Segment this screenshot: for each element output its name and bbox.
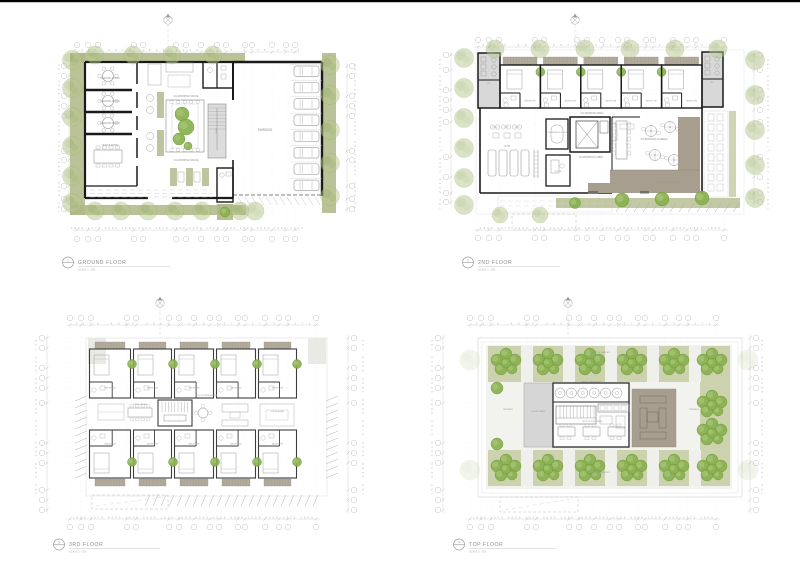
dim-string-right: 750 2300 1400 1700 4650 1400 2300 750 bbox=[353, 64, 357, 212]
room-label-bedroom: BEDROOM bbox=[525, 101, 536, 103]
plan-scale: SCALE 1 : 100 bbox=[469, 549, 487, 553]
plan-title: 2ND FLOOR bbox=[478, 260, 512, 266]
room-label-meeting-1: MEETING ROOM bbox=[101, 77, 120, 80]
room-label-coworking-top: CO-WORKING SPACE bbox=[174, 95, 199, 98]
plan-scale: SCALE 1 : 100 bbox=[478, 267, 496, 271]
room-label-bedroom: BEDROOM bbox=[231, 388, 242, 390]
title-block-top-floor: 4 TOP FLOOR SCALE 1 : 100 bbox=[454, 539, 557, 553]
plan-3rd-floor-drawing bbox=[39, 297, 357, 530]
title-block-3rd-floor: 3 3RD FLOOR SCALE 1 : 100 bbox=[54, 539, 161, 553]
room-label-coworking: CO-WORKING AREA bbox=[197, 394, 218, 397]
room-label-meeting-2: MEETING ROOM bbox=[101, 100, 120, 103]
plan-scale: SCALE 1 : 100 bbox=[69, 549, 87, 553]
room-label-bedroom: BEDROOM bbox=[147, 444, 158, 446]
room-label-bedroom: BEDROOM bbox=[272, 388, 283, 390]
dim-string-right: 750 2300 1400 1700 4650 1400 2300 750 bbox=[760, 339, 764, 494]
plan-scale: SCALE 1 : 100 bbox=[78, 267, 96, 271]
room-label-outdoor: CO-WORKING OUTDOOR bbox=[655, 182, 681, 184]
dim-string-right: 750 2300 1400 1700 4650 1400 2300 750 bbox=[766, 59, 770, 209]
plan-title: 3RD FLOOR bbox=[69, 542, 103, 548]
plan-top-floor-drawing bbox=[435, 297, 759, 530]
room-label-bedroom: BEDROOM bbox=[189, 444, 200, 446]
room-label-bedroom: BEDROOM bbox=[231, 444, 242, 446]
room-label-conference: CONFERENCE ROOM bbox=[546, 132, 568, 134]
room-label-parking: PARKING bbox=[258, 128, 273, 132]
room-label-rooftop-bottom: ROOFTOP GARDEN bbox=[590, 471, 610, 474]
room-label-gym: GYM bbox=[504, 145, 509, 148]
room-label-wc-right: WC bbox=[710, 82, 714, 84]
room-label-office: OFFICE bbox=[554, 171, 562, 173]
room-label-bedroom: BEDROOM bbox=[605, 101, 616, 103]
title-marker-number: 2 bbox=[467, 258, 469, 262]
plan-title: GROUND FLOOR bbox=[78, 260, 126, 266]
room-label-rooftop-top: ROOFTOP GARDEN bbox=[590, 351, 610, 354]
room-label-wc-left: WC bbox=[487, 83, 491, 85]
plan-2nd-floor-drawing bbox=[443, 14, 764, 241]
dim-string-left: 750 2300 1400 1700 4650 1400 2300 750 bbox=[34, 339, 38, 494]
title-block-ground-floor: 1 GROUND FLOOR SCALE 1 : 100 bbox=[63, 257, 171, 271]
room-label-solar-panel: SOLAR PANEL bbox=[531, 410, 546, 413]
room-label-coworking-area: CO-WORKING AREA bbox=[580, 112, 604, 115]
room-label-living: LIVING AREA bbox=[271, 410, 285, 413]
dim-string-bottom: 1900 1375 4000 1525 4000 1525 2000 2000 … bbox=[73, 515, 313, 519]
room-label-stair: STAIR bbox=[215, 128, 218, 134]
room-label-bedroom: BEDROOM bbox=[105, 444, 116, 446]
dim-string-bottom: 1900 1375 4000 1525 4000 1525 2000 2000 … bbox=[473, 515, 713, 519]
room-label-terrace-right: TERRACE bbox=[689, 408, 700, 411]
room-label-bedroom: BEDROOM bbox=[105, 388, 116, 390]
room-label-outdoor-kitchen: OUTDOOR KITCHEN bbox=[582, 421, 603, 423]
room-label-coworking-bottom: CO-WORKING SPACE bbox=[174, 159, 199, 162]
room-label-water-treatment: WATER TREATMENT bbox=[581, 380, 602, 383]
floor-plans-canvas: MEETING ROOM MEETING ROOM MEETING ROOM O… bbox=[0, 0, 800, 564]
room-label-meeting-3: MEETING ROOM bbox=[101, 122, 120, 125]
room-label-bedroom: BEDROOM bbox=[686, 101, 697, 103]
plan-ground-floor-labels: MEETING ROOM MEETING ROOM MEETING ROOM O… bbox=[57, 48, 357, 271]
room-label-garden: CO-WORKING GARDEN bbox=[641, 138, 668, 141]
plan-title: TOP FLOOR bbox=[469, 542, 503, 548]
dim-string-left: 750 2300 1400 1700 4650 1400 2300 750 bbox=[57, 64, 61, 212]
architectural-drawing-sheet: MEETING ROOM MEETING ROOM MEETING ROOM O… bbox=[0, 0, 800, 564]
dim-string-left: 750 2300 1400 1700 4650 1400 2300 750 bbox=[430, 339, 434, 494]
room-label-bedroom: BEDROOM bbox=[646, 101, 657, 103]
dim-string-bottom: 1900 1375 4000 1525 4000 1525 2000 2000 … bbox=[480, 226, 720, 230]
room-label-dining: DINING AREA bbox=[133, 403, 147, 406]
room-label-terrace-left: TERRACE bbox=[503, 408, 514, 411]
room-label-bedroom: BEDROOM bbox=[189, 388, 200, 390]
dim-string-top: 3275 4800 4800 2650 4075 2725 3275 bbox=[75, 48, 300, 52]
title-marker-number: 3 bbox=[58, 540, 60, 544]
dim-string-bottom: 1900 1375 4000 1525 4000 1525 2000 2000 … bbox=[71, 226, 303, 230]
room-label-bedroom: BEDROOM bbox=[147, 388, 158, 390]
room-label-lobby: CO-WORKING LOBBY bbox=[579, 156, 604, 159]
plan-ground-floor-drawing bbox=[61, 14, 355, 242]
title-marker-number: 4 bbox=[458, 540, 460, 544]
sheet-top-border bbox=[0, 0, 800, 2]
room-label-bedroom: BEDROOM bbox=[272, 444, 283, 446]
dim-string-left: 750 2300 1400 1700 4650 1400 2300 750 bbox=[438, 59, 442, 209]
room-label-office: OFFICE ROOM bbox=[102, 144, 119, 147]
title-block-2nd-floor: 2 2ND FLOOR SCALE 1 : 100 bbox=[463, 257, 561, 271]
room-label-bedroom: BEDROOM bbox=[565, 101, 576, 103]
title-marker-number: 1 bbox=[67, 258, 69, 262]
dim-string-right: 750 2300 1400 1700 4650 1400 2300 750 bbox=[361, 339, 365, 494]
